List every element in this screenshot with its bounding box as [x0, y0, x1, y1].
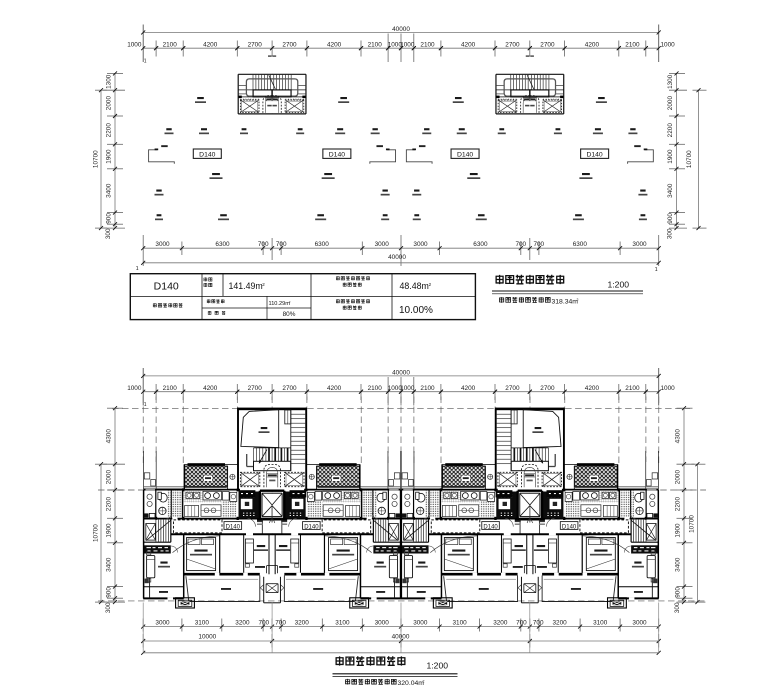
svg-text:D140: D140: [483, 524, 498, 530]
svg-text:10700: 10700: [686, 150, 693, 168]
svg-text:1000: 1000: [400, 41, 415, 48]
svg-text:1900: 1900: [667, 149, 674, 164]
svg-text:4300: 4300: [106, 429, 113, 444]
svg-text:700: 700: [516, 619, 527, 626]
svg-text:2000: 2000: [667, 96, 674, 111]
svg-text:D140: D140: [154, 280, 179, 292]
svg-text:3400: 3400: [106, 557, 113, 572]
svg-text:40000: 40000: [388, 254, 406, 261]
svg-text:3000: 3000: [632, 619, 647, 626]
svg-text:3000: 3000: [413, 241, 428, 248]
svg-text:2100: 2100: [625, 41, 640, 48]
svg-text:4200: 4200: [585, 41, 600, 48]
svg-text:10700: 10700: [689, 515, 696, 533]
svg-text:3100: 3100: [452, 619, 467, 626]
svg-text:2200: 2200: [106, 497, 113, 512]
svg-text:10700: 10700: [93, 150, 100, 168]
svg-text:3400: 3400: [675, 557, 682, 572]
svg-text:D140: D140: [304, 524, 319, 530]
svg-text:D140: D140: [586, 152, 602, 159]
svg-text:141.49m: 141.49m: [229, 281, 263, 291]
svg-text:700: 700: [258, 619, 269, 626]
svg-text:2: 2: [423, 679, 425, 683]
svg-text:2200: 2200: [106, 123, 113, 138]
svg-text:2000: 2000: [106, 470, 113, 485]
svg-text:1900: 1900: [106, 523, 113, 538]
svg-text:3000: 3000: [155, 241, 170, 248]
svg-text:4300: 4300: [675, 429, 682, 444]
svg-text:1300: 1300: [667, 74, 674, 89]
svg-text:4200: 4200: [327, 41, 342, 48]
svg-text:300: 300: [667, 228, 674, 239]
svg-text:1: 1: [144, 402, 147, 408]
svg-text:3200: 3200: [235, 619, 250, 626]
svg-text:10000: 10000: [198, 634, 216, 641]
svg-text:300: 300: [674, 602, 681, 613]
svg-text:10.00%: 10.00%: [399, 305, 433, 316]
svg-text:1300: 1300: [106, 74, 113, 89]
svg-text:700: 700: [533, 241, 544, 248]
svg-text:3100: 3100: [593, 619, 608, 626]
svg-text:4200: 4200: [461, 41, 476, 48]
svg-text:2000: 2000: [106, 96, 113, 111]
svg-text:1:200: 1:200: [608, 279, 630, 289]
svg-text:320.04m: 320.04m: [398, 680, 425, 687]
svg-text:900: 900: [667, 213, 674, 224]
svg-text:1: 1: [144, 59, 147, 65]
svg-text:3000: 3000: [375, 241, 390, 248]
svg-text:1900: 1900: [106, 149, 113, 164]
svg-text:2: 2: [577, 298, 579, 302]
svg-text:3400: 3400: [667, 183, 674, 198]
svg-text:2000: 2000: [675, 470, 682, 485]
svg-text:D140: D140: [329, 152, 345, 159]
svg-text:318.34m: 318.34m: [552, 298, 579, 305]
svg-text:3000: 3000: [413, 619, 428, 626]
svg-text:2100: 2100: [368, 41, 383, 48]
svg-text:6300: 6300: [315, 241, 330, 248]
svg-text:900: 900: [106, 213, 113, 224]
svg-text:1: 1: [136, 266, 139, 272]
svg-text:1900: 1900: [675, 523, 682, 538]
svg-text:3000: 3000: [632, 241, 647, 248]
svg-text:1: 1: [655, 267, 658, 273]
svg-text:3400: 3400: [106, 183, 113, 198]
svg-text:3000: 3000: [155, 619, 170, 626]
svg-text:80%: 80%: [283, 311, 296, 318]
svg-text:700: 700: [533, 619, 544, 626]
svg-text:2100: 2100: [420, 41, 435, 48]
svg-text:D140: D140: [562, 524, 577, 530]
svg-text:2200: 2200: [667, 123, 674, 138]
svg-text:300: 300: [105, 602, 112, 613]
svg-text:6300: 6300: [573, 241, 588, 248]
svg-text:2700: 2700: [540, 41, 555, 48]
svg-text:3200: 3200: [295, 619, 310, 626]
svg-text:700: 700: [515, 241, 526, 248]
svg-text:2200: 2200: [675, 497, 682, 512]
svg-text:D140: D140: [457, 152, 473, 159]
svg-text:6300: 6300: [215, 241, 230, 248]
svg-text:4200: 4200: [203, 41, 218, 48]
svg-text:3200: 3200: [552, 619, 567, 626]
svg-text:2100: 2100: [163, 41, 178, 48]
svg-text:300: 300: [105, 228, 112, 239]
svg-text:2700: 2700: [282, 41, 297, 48]
svg-text:1:200: 1:200: [427, 661, 449, 671]
svg-text:3200: 3200: [493, 619, 508, 626]
svg-text:2700: 2700: [505, 41, 520, 48]
svg-text:48.48m: 48.48m: [400, 281, 429, 291]
svg-text:700: 700: [275, 619, 286, 626]
svg-text:700: 700: [276, 241, 287, 248]
svg-text:900: 900: [675, 587, 682, 598]
svg-text:3000: 3000: [375, 619, 390, 626]
svg-text:1000: 1000: [660, 41, 675, 48]
svg-text:3100: 3100: [335, 619, 350, 626]
svg-text:700: 700: [258, 241, 269, 248]
svg-text:D140: D140: [199, 152, 215, 159]
svg-text:1000: 1000: [127, 41, 142, 48]
svg-text:900: 900: [106, 587, 113, 598]
svg-text:2700: 2700: [248, 41, 263, 48]
svg-text:6300: 6300: [473, 241, 488, 248]
svg-text:D140: D140: [226, 524, 241, 530]
svg-text:110.29m: 110.29m: [269, 301, 291, 307]
svg-text:40000: 40000: [392, 26, 410, 33]
svg-text:10700: 10700: [93, 524, 100, 542]
svg-text:3100: 3100: [195, 619, 210, 626]
